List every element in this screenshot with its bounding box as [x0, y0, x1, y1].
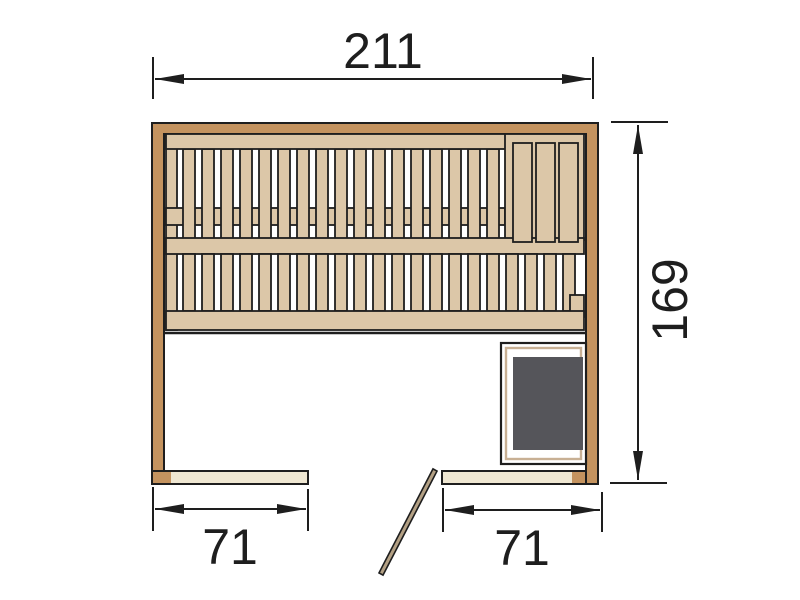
bench-slat: [221, 149, 233, 239]
bench-slat: [297, 149, 309, 239]
bench-slat: [240, 254, 252, 311]
dimension-label-opening-left: 71: [202, 519, 258, 575]
bench-slat: [411, 149, 423, 239]
lower-bench-slats: [183, 254, 575, 311]
dimension-overall-width: 211: [153, 23, 593, 99]
bottom-wall-left-segment: [152, 471, 308, 484]
bench-slat: [449, 149, 461, 239]
bench-slat: [259, 254, 271, 311]
bench-slat: [392, 254, 404, 311]
dimension-label-depth: 169: [642, 258, 698, 341]
bench-slat: [411, 254, 423, 311]
arrowhead-left: [155, 504, 184, 514]
dimension-opening-right: 71: [443, 488, 602, 576]
upper-bench-back-rail: [166, 134, 512, 149]
bench-slat: [183, 254, 195, 311]
bench-slat: [278, 254, 290, 311]
bench-slat: [513, 143, 532, 242]
sauna-heater: [501, 343, 586, 464]
bench-slat: [430, 254, 442, 311]
dimension-overall-depth: 169: [610, 122, 698, 483]
bench-slat: [449, 254, 461, 311]
bench-slat: [240, 149, 252, 239]
bench-slat: [468, 149, 480, 239]
bench-slat: [525, 254, 537, 311]
bench-slat: [316, 254, 328, 311]
upper-bench-slats: [183, 149, 499, 239]
dimension-label-opening-right: 71: [494, 520, 550, 576]
headrest-wide-slats: [513, 143, 578, 242]
dimension-label-width: 211: [343, 23, 423, 79]
bench-slat: [259, 149, 271, 239]
bottom-wall-right-segment: [442, 471, 586, 484]
lower-bench-front-rail: [166, 311, 584, 330]
lower-bench: [164, 254, 586, 333]
sauna-plan-drawing: 211 169 71 71: [0, 0, 800, 600]
arrowhead-right: [571, 505, 600, 515]
arrowhead-left: [155, 74, 184, 84]
arrowhead-up: [633, 125, 643, 154]
arrowhead-right: [277, 504, 306, 514]
bench-slat: [506, 254, 518, 311]
arrowhead-down: [633, 451, 643, 480]
bench-slat: [278, 149, 290, 239]
bench-slat: [373, 149, 385, 239]
arrowhead-right: [562, 74, 591, 84]
bench-left-end-rail: [166, 134, 177, 330]
bench-slat: [335, 254, 347, 311]
heater-body: [513, 357, 583, 450]
bench-slat: [536, 143, 555, 242]
bench-slat: [373, 254, 385, 311]
bench-slat: [354, 149, 366, 239]
door-leaf: [379, 469, 437, 575]
bench-slat: [544, 254, 556, 311]
bench-slat: [221, 254, 233, 311]
bench-slat: [316, 149, 328, 239]
bench-slat: [430, 149, 442, 239]
bench-slat: [202, 149, 214, 239]
bench-slat: [487, 254, 499, 311]
bench-slat: [202, 254, 214, 311]
bench-slat: [354, 254, 366, 311]
bench-slat: [335, 149, 347, 239]
bench-slat: [392, 149, 404, 239]
bench-slat: [487, 149, 499, 239]
bench-slat: [183, 149, 195, 239]
bench-slat: [559, 143, 578, 242]
bench-slat: [297, 254, 309, 311]
dimension-opening-left: 71: [153, 487, 308, 575]
arrowhead-left: [445, 505, 474, 515]
bench-slat: [468, 254, 480, 311]
